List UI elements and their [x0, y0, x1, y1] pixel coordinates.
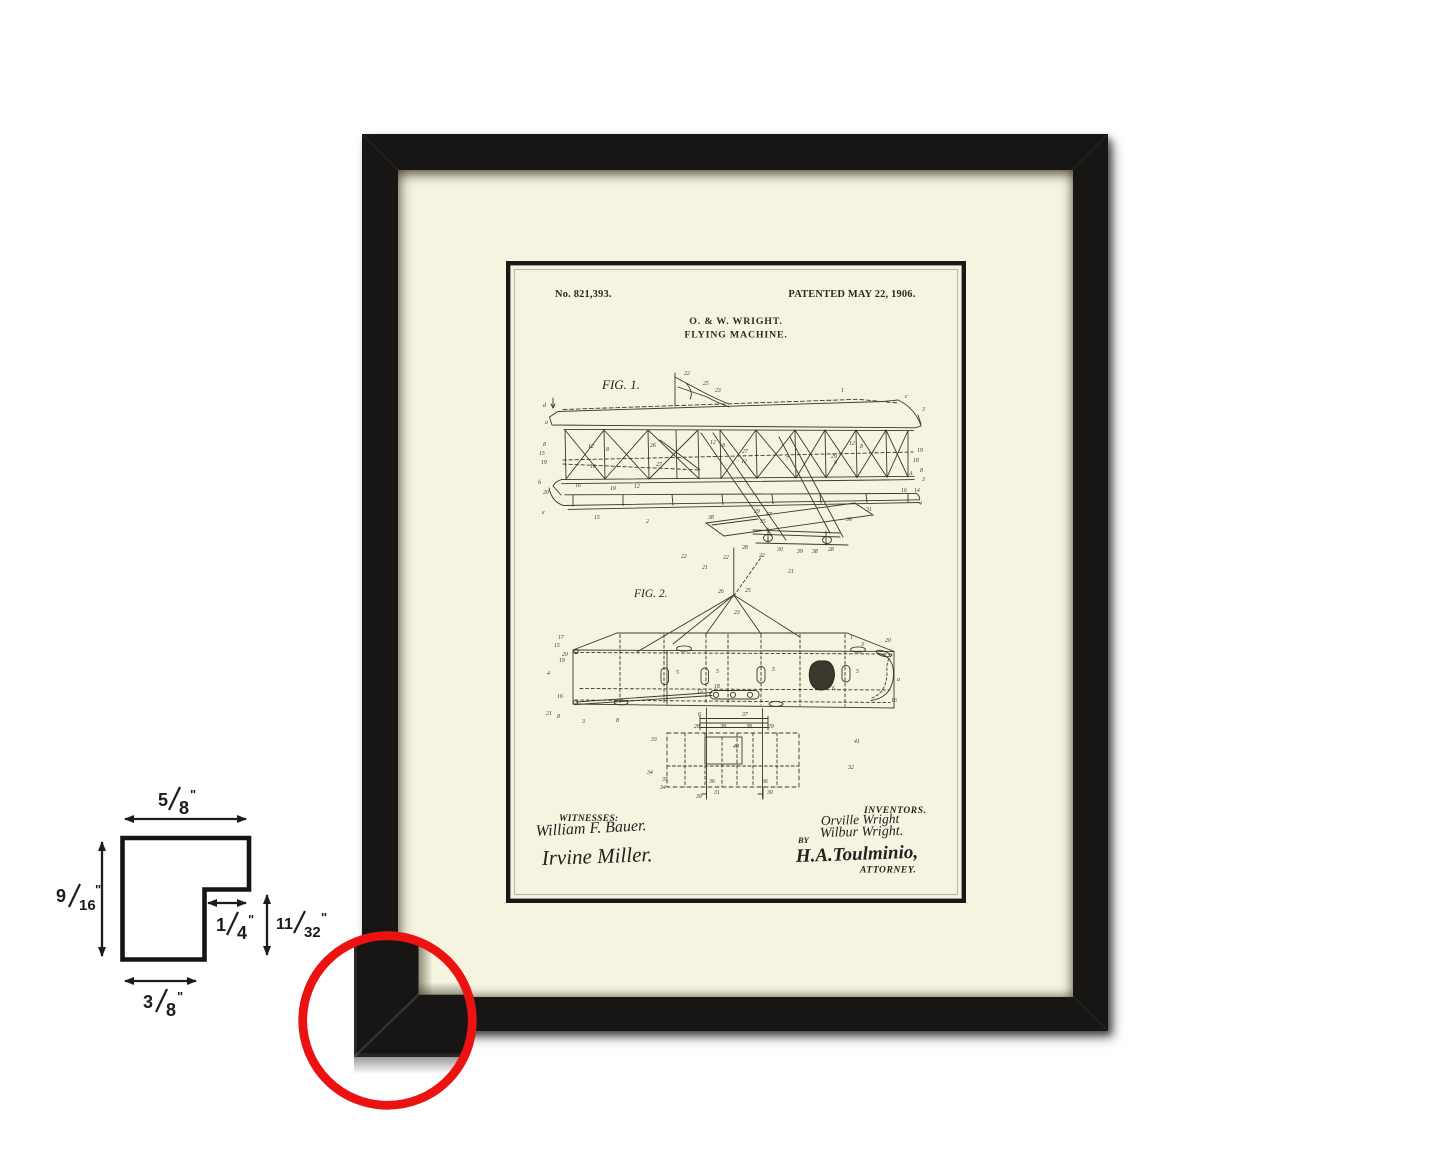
svg-text:8: 8 [860, 444, 863, 450]
svg-text:8: 8 [179, 798, 189, 818]
svg-text:34: 34 [659, 784, 666, 791]
svg-text:27: 27 [742, 449, 749, 455]
svg-text:23: 23 [715, 388, 721, 394]
svg-text:8: 8 [920, 468, 923, 474]
svg-text:PATENTED MAY 22, 1906.: PATENTED MAY 22, 1906. [788, 289, 915, 300]
svg-text:20: 20 [885, 638, 891, 644]
svg-text:19: 19 [541, 460, 547, 466]
svg-text:4: 4 [919, 500, 922, 507]
svg-text:h: h [538, 480, 541, 486]
svg-text:36: 36 [708, 779, 715, 785]
svg-text:31: 31 [713, 790, 720, 796]
svg-text:3: 3 [921, 407, 925, 413]
svg-text:25: 25 [703, 381, 709, 387]
svg-text:12: 12 [741, 459, 747, 465]
svg-text:16: 16 [79, 897, 96, 914]
svg-text:8: 8 [606, 447, 609, 453]
svg-text:28: 28 [828, 547, 834, 553]
svg-text:1: 1 [841, 388, 844, 394]
svg-text:38: 38 [719, 724, 726, 730]
svg-text:32: 32 [847, 765, 854, 771]
svg-text:37: 37 [765, 512, 773, 518]
svg-text:6: 6 [832, 686, 835, 692]
svg-text:William F. Bauer.: William F. Bauer. [535, 817, 647, 840]
svg-text:8: 8 [543, 442, 546, 448]
svg-text:4: 4 [237, 923, 247, 943]
svg-text:37: 37 [741, 712, 749, 718]
svg-text:8: 8 [834, 460, 837, 466]
svg-text:9: 9 [56, 886, 66, 906]
svg-text:29: 29 [754, 509, 760, 515]
svg-text:2: 2 [646, 519, 649, 525]
svg-text:20: 20 [543, 490, 549, 496]
svg-text:19: 19 [559, 658, 565, 664]
svg-text:38: 38 [707, 515, 714, 521]
svg-text:22: 22 [684, 371, 690, 377]
svg-text:16: 16 [891, 698, 897, 704]
svg-text:8: 8 [722, 443, 725, 449]
svg-text:28: 28 [694, 724, 700, 730]
svg-text:34: 34 [646, 769, 653, 776]
svg-text:16: 16 [901, 488, 907, 494]
svg-text:26: 26 [718, 589, 724, 595]
svg-text:41: 41 [854, 738, 860, 745]
svg-text:": " [190, 787, 196, 802]
svg-text:4: 4 [547, 670, 550, 677]
svg-text:18: 18 [913, 458, 919, 464]
svg-text:3: 3 [921, 477, 925, 483]
svg-text:Wilbur Wright.: Wilbur Wright. [820, 824, 904, 841]
svg-text:38: 38 [811, 549, 818, 555]
svg-text:12: 12 [588, 444, 594, 450]
svg-text:14: 14 [914, 487, 920, 494]
svg-text:": " [95, 882, 101, 897]
svg-text:BY: BY [797, 835, 810, 845]
svg-text:21: 21 [546, 711, 552, 717]
svg-text:22: 22 [681, 554, 687, 560]
svg-text:6: 6 [698, 712, 701, 718]
svg-text:23: 23 [734, 610, 740, 616]
svg-text:38: 38 [745, 724, 752, 730]
svg-text:5: 5 [856, 669, 859, 675]
svg-text:36: 36 [761, 779, 768, 785]
svg-text:26: 26 [650, 443, 656, 449]
svg-text:35: 35 [759, 519, 766, 525]
svg-text:FLYING MACHINE.: FLYING MACHINE. [684, 330, 787, 341]
svg-text:22: 22 [759, 553, 765, 559]
svg-text:15: 15 [554, 643, 560, 649]
svg-text:c: c [905, 394, 908, 400]
svg-text:": " [248, 912, 254, 927]
svg-text:18: 18 [714, 684, 720, 690]
svg-text:8: 8 [557, 714, 560, 720]
svg-text:15: 15 [539, 451, 545, 457]
svg-text:33: 33 [650, 737, 657, 743]
svg-text:19: 19 [610, 486, 616, 492]
svg-text:35: 35 [661, 777, 668, 783]
svg-text:16: 16 [590, 464, 596, 470]
svg-text:16: 16 [557, 694, 563, 700]
svg-text:H.A.Toulminio,: H.A.Toulminio, [794, 842, 918, 867]
svg-text:17: 17 [558, 635, 565, 641]
svg-text:36: 36 [845, 517, 852, 523]
svg-text:15: 15 [594, 515, 600, 521]
svg-text:Irvine Miller.: Irvine Miller. [540, 842, 653, 870]
svg-text:25: 25 [745, 588, 751, 594]
svg-text:5: 5 [772, 667, 775, 673]
svg-text:A: A [908, 471, 913, 477]
svg-text:21: 21 [788, 569, 794, 575]
svg-text:31: 31 [865, 507, 872, 513]
svg-text:O. & W. WRIGHT.: O. & W. WRIGHT. [689, 316, 782, 327]
svg-text:30: 30 [766, 790, 773, 796]
svg-text:29: 29 [768, 724, 774, 730]
svg-text:3: 3 [860, 642, 864, 648]
svg-text:12: 12 [634, 484, 640, 490]
svg-text:19: 19 [917, 448, 923, 454]
svg-text:39: 39 [796, 549, 803, 555]
svg-text:21: 21 [702, 565, 708, 571]
svg-text:39: 39 [695, 794, 702, 800]
svg-text:No. 821,393.: No. 821,393. [555, 289, 612, 300]
svg-text:8: 8 [616, 718, 619, 724]
svg-text:12: 12 [849, 441, 855, 447]
svg-text:FIG. 2.: FIG. 2. [633, 588, 668, 600]
svg-text:27: 27 [656, 462, 663, 468]
svg-text:3: 3 [581, 719, 585, 725]
svg-text:ATTORNEY.: ATTORNEY. [859, 866, 917, 876]
svg-text:a: a [897, 677, 900, 683]
svg-text:e: e [542, 510, 545, 516]
svg-text:d: d [543, 403, 546, 409]
svg-text:1: 1 [216, 915, 226, 935]
svg-text:12: 12 [710, 440, 716, 446]
svg-text:40: 40 [733, 743, 739, 750]
svg-text:a: a [545, 420, 548, 426]
svg-text:16: 16 [575, 483, 581, 489]
svg-text:5: 5 [158, 790, 168, 810]
svg-text:5: 5 [716, 669, 719, 675]
svg-text:28: 28 [742, 545, 748, 551]
svg-text:30: 30 [776, 547, 783, 553]
svg-text:15: 15 [697, 689, 703, 695]
svg-text:1: 1 [850, 635, 853, 641]
svg-text:3: 3 [143, 992, 153, 1012]
svg-text:5: 5 [676, 670, 679, 676]
svg-text:": " [177, 989, 183, 1004]
svg-text:22: 22 [723, 555, 729, 561]
svg-text:8: 8 [166, 1000, 176, 1020]
svg-text:FIG. 1.: FIG. 1. [601, 377, 640, 392]
